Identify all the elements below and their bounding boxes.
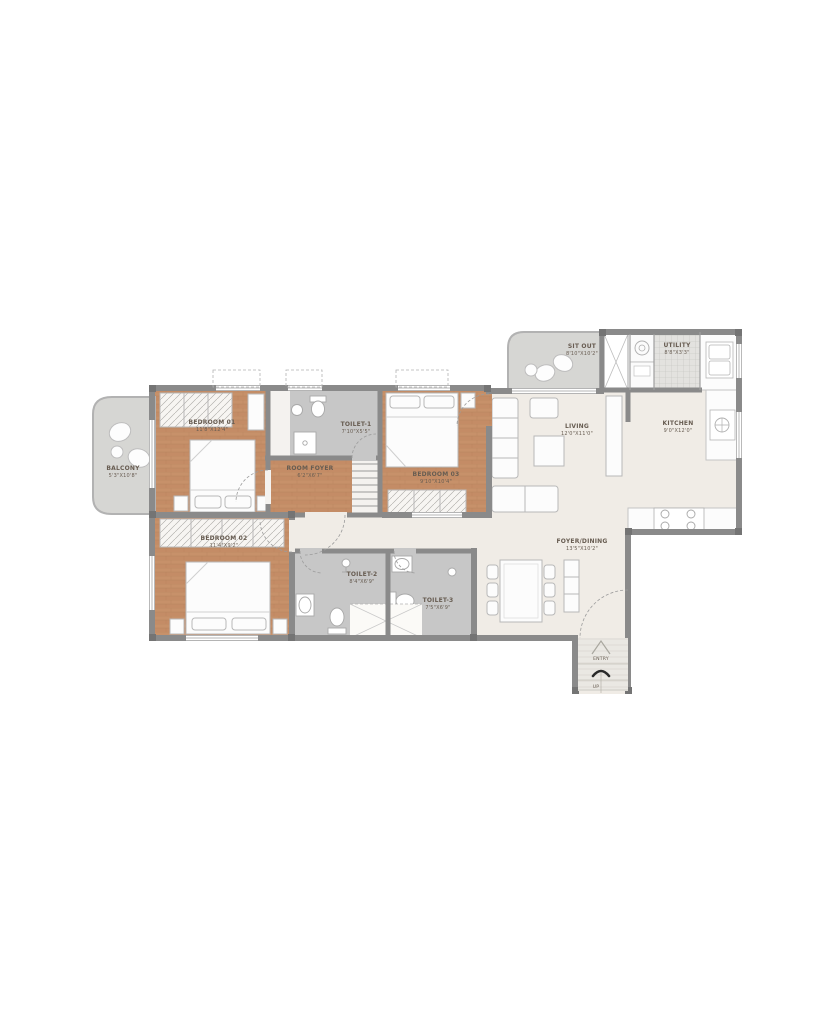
living-label: LIVING <box>565 423 589 430</box>
foyer-dining-label: FOYER/DINING <box>556 538 607 545</box>
entry-zone <box>578 638 628 693</box>
washbasin-icon <box>292 405 303 416</box>
pillow <box>232 618 266 630</box>
wc-icon <box>330 608 344 626</box>
bedroom-03-label: BEDROOM 03 <box>413 471 460 478</box>
entry-label: ENTRY <box>593 656 609 662</box>
washer-column <box>630 334 654 362</box>
utility-dims: 8'8"X3'3" <box>664 350 689 356</box>
window <box>186 635 258 641</box>
toilet-1-lobby <box>268 388 290 458</box>
foyer-dining-dims: 13'5"X10'2" <box>566 546 598 552</box>
bedroom-01-dims: 11'8"X12'4" <box>196 427 228 433</box>
living-dims: 12'0"X11'0" <box>561 431 593 437</box>
room-foyer-label: ROOM FOYER <box>287 465 334 472</box>
sink-icon <box>706 342 733 378</box>
balcony-dims: 5'3"X10'8" <box>109 473 138 479</box>
armchair <box>530 398 558 418</box>
coffee-table <box>534 436 564 466</box>
toilet-3-dims: 7'5"X6'9" <box>425 605 450 611</box>
floor-plan-page: BALCONY 5'3"X10'8" BEDROOM 01 11'8"X12'4… <box>0 0 818 1024</box>
pillow <box>192 618 226 630</box>
sit-out <box>508 332 600 391</box>
dresser <box>248 394 264 430</box>
chair <box>487 565 498 579</box>
window <box>412 512 462 518</box>
chair <box>544 583 555 597</box>
pillow <box>390 396 420 408</box>
window <box>149 556 155 610</box>
toilet-1-dims: 7'10"X5'5" <box>342 429 371 435</box>
sliding-door <box>512 388 596 394</box>
pillow <box>195 496 221 508</box>
side-table <box>170 619 184 634</box>
window <box>398 385 450 391</box>
wc-tank <box>328 628 346 634</box>
dining-table <box>500 560 542 622</box>
sit-out-dims: 8'10"X10'2" <box>566 351 598 357</box>
balcony-door <box>149 420 155 488</box>
side-table <box>174 496 188 511</box>
toilet-2-dims: 8'4"X6'9" <box>349 579 374 585</box>
room-foyer-dims: 6'2"X6'7" <box>297 473 322 479</box>
sideboard <box>564 560 579 612</box>
balcony <box>93 397 155 514</box>
pillow <box>225 496 251 508</box>
chair <box>487 601 498 615</box>
projection-dashes <box>213 370 448 387</box>
toilet-2-label: TOILET-2 <box>347 571 378 578</box>
window <box>288 385 322 391</box>
pillow <box>424 396 454 408</box>
chair <box>544 565 555 579</box>
bedroom-02-dims: 11'4"X9'2" <box>210 543 239 549</box>
kitchen-dims: 9'0"X12'0" <box>664 428 693 434</box>
shaft <box>604 334 628 390</box>
kitchen-label: KITCHEN <box>663 420 694 427</box>
side-table <box>273 619 287 634</box>
bedroom-03-dims: 9'10"X10'4" <box>420 479 452 485</box>
floor-plan: BALCONY 5'3"X10'8" BEDROOM 01 11'8"X12'4… <box>0 0 818 1024</box>
wardrobe <box>388 490 466 513</box>
tv-unit <box>606 396 622 476</box>
bedroom-01-label: BEDROOM 01 <box>189 419 236 426</box>
wc-icon <box>312 401 325 417</box>
toilet-3-label: TOILET-3 <box>423 597 454 604</box>
sit-out-label: SIT OUT <box>568 343 597 350</box>
window <box>736 344 742 378</box>
up-label: UP <box>593 684 600 690</box>
window <box>216 385 260 391</box>
chair <box>487 583 498 597</box>
shower-icon <box>448 568 456 576</box>
utility-label: UTILITY <box>663 342 691 349</box>
shower-icon <box>342 559 350 567</box>
side-table <box>461 393 475 408</box>
chair <box>544 601 555 615</box>
balcony-label: BALCONY <box>106 465 140 472</box>
bedroom-02-label: BEDROOM 02 <box>201 535 248 542</box>
window <box>736 412 742 458</box>
toilet-1-label: TOILET-1 <box>341 421 372 428</box>
